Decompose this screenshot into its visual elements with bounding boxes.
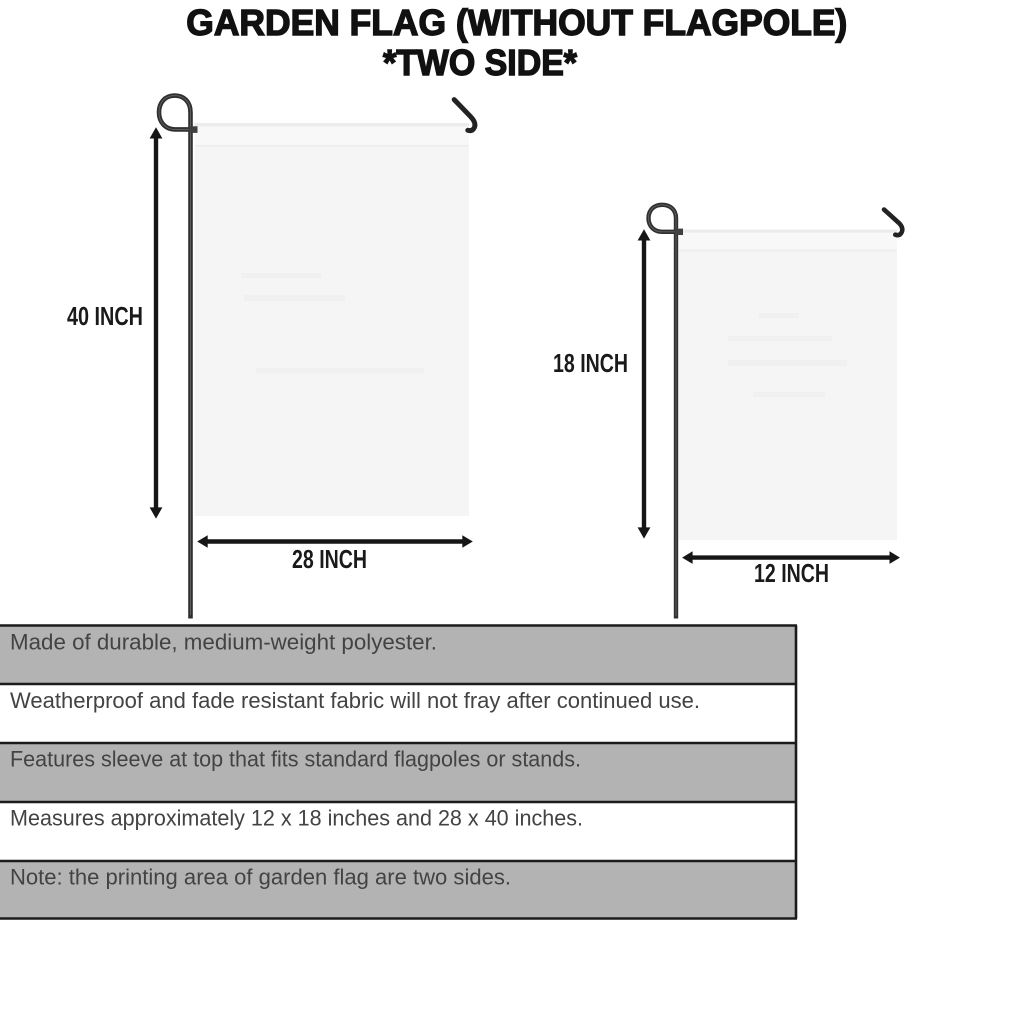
- svg-text:28 INCH: 28 INCH: [292, 544, 367, 574]
- svg-text:12 INCH: 12 INCH: [754, 558, 829, 588]
- svg-text:Measures approximately 12 x 18: Measures approximately 12 x 18 inches an…: [10, 806, 583, 831]
- svg-text:40 INCH: 40 INCH: [67, 301, 143, 331]
- svg-text:Weatherproof and fade resistan: Weatherproof and fade resistant fabric w…: [10, 688, 700, 713]
- svg-text:*TWO SIDE*: *TWO SIDE*: [383, 42, 577, 83]
- svg-text:18 INCH: 18 INCH: [553, 348, 628, 378]
- svg-text:Features sleeve at top that fi: Features sleeve at top that fits standar…: [10, 747, 581, 772]
- svg-text:Made of durable, medium-weight: Made of durable, medium-weight polyester…: [10, 630, 437, 655]
- svg-text:Note: the printing area of gar: Note: the printing area of garden flag a…: [10, 865, 511, 890]
- svg-text:GARDEN FLAG (WITHOUT FLAGPOLE): GARDEN FLAG (WITHOUT FLAGPOLE): [186, 2, 847, 43]
